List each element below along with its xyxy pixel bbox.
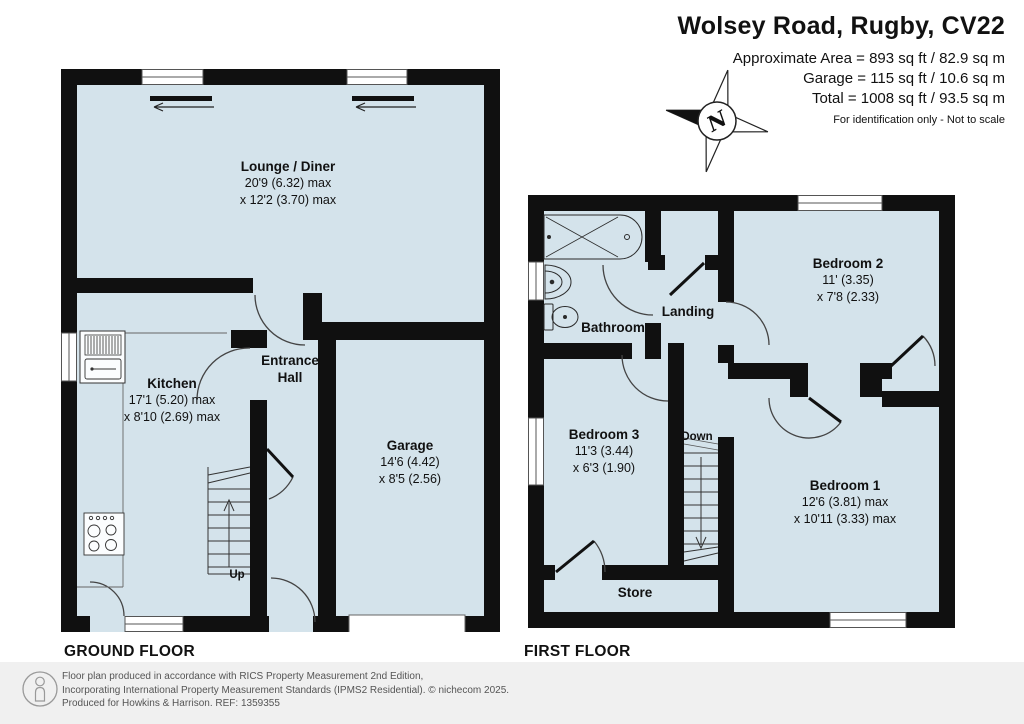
room-name: Bedroom 2 [813,255,884,272]
room-dimension: 20'9 (6.32) max [240,175,336,192]
room-dimension: 11'3 (3.44) [569,443,640,460]
lounge-label: Lounge / Diner 20'9 (6.32) max x 12'2 (3… [240,158,336,209]
stairs-down-label: Down [681,431,712,443]
room-name: Entrance [261,352,319,369]
footer-line-1: Floor plan produced in accordance with R… [62,670,509,684]
footer-line-3: Produced for Howkins & Harrison. REF: 13… [62,697,509,711]
kitchen-rear-window [125,617,183,632]
kitchen-sink-unit-icon [80,331,125,383]
bedroom3-label: Bedroom 3 11'3 (3.44) x 6'3 (1.90) [569,426,640,477]
room-dimension: x 7'8 (2.33) [813,289,884,306]
bathroom-label: Bathroom [581,319,645,336]
kitchen-label: Kitchen 17'1 (5.20) max x 8'10 (2.69) ma… [124,375,220,426]
nichecom-logo-icon [20,669,60,709]
entrance-hall-label: Entrance Hall [261,352,319,386]
ground-floor-title: GROUND FLOOR [64,643,195,661]
room-name: Lounge / Diner [240,158,336,175]
bedroom2-label: Bedroom 2 11' (3.35) x 7'8 (2.33) [813,255,884,306]
room-name: Garage [379,437,441,454]
page-title: Wolsey Road, Rugby, CV22 [677,12,1005,41]
first-floor-plan [528,195,955,628]
garage-door [349,615,465,632]
room-dimension: 11' (3.35) [813,272,884,289]
footer-disclaimer: Floor plan produced in accordance with R… [62,670,509,711]
stove-icon [84,513,124,555]
garage-label: Garage 14'6 (4.42) x 8'5 (2.56) [379,437,441,488]
footer-line-2: Incorporating International Property Mea… [62,684,509,698]
floorplan-page: Wolsey Road, Rugby, CV22 Approximate Are… [0,0,1024,724]
bedroom1-label: Bedroom 1 12'6 (3.81) max x 10'11 (3.33)… [794,477,896,528]
bedroom2-window [798,196,882,211]
footer: Floor plan produced in accordance with R… [0,662,1024,724]
landing-label: Landing [662,303,715,320]
room-name: Bathroom [581,319,645,336]
room-dimension: x 10'11 (3.33) max [794,511,896,528]
room-dimension: 12'6 (3.81) max [794,494,896,511]
bedroom3-window [529,418,544,485]
kitchen-side-window [62,333,77,381]
room-name: Bedroom 3 [569,426,640,443]
first-floor-title: FIRST FLOOR [524,643,631,661]
lounge-window-2 [347,70,407,85]
room-dimension: x 8'5 (2.56) [379,471,441,488]
room-dimension: x 6'3 (1.90) [569,460,640,477]
ground-floor-plan [61,69,500,632]
room-name: Hall [261,369,319,386]
compass-icon: N [660,64,775,179]
room-dimension: x 12'2 (3.70) max [240,192,336,209]
room-name: Landing [662,303,715,320]
store-label: Store [618,584,653,601]
bedroom1-window [830,613,906,628]
bathroom-window [529,262,544,300]
room-name: Kitchen [124,375,220,392]
room-name: Store [618,584,653,601]
stairs-up-label: Up [229,569,244,581]
room-name: Bedroom 1 [794,477,896,494]
room-dimension: 14'6 (4.42) [379,454,441,471]
lounge-window-1 [142,70,203,85]
room-dimension: 17'1 (5.20) max [124,392,220,409]
room-dimension: x 8'10 (2.69) max [124,409,220,426]
